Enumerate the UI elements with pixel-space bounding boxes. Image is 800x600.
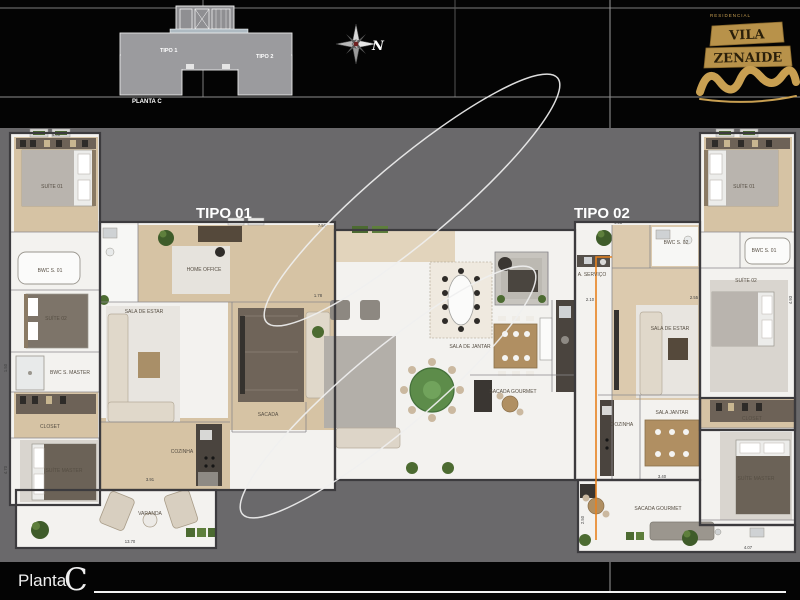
room-label-home-office: HOME OFFICE bbox=[187, 267, 222, 273]
room-label-cozinha2: COZINHA bbox=[611, 422, 634, 428]
room-label-sala-estar: SALA DE ESTAR bbox=[125, 309, 164, 315]
room-label-suite02-r: SUÍTE 02 bbox=[735, 277, 757, 284]
dim-1: 4.51 bbox=[614, 220, 623, 225]
room-label-suite01-r: SUÍTE 01 bbox=[733, 183, 755, 190]
footer-underline bbox=[94, 591, 786, 593]
room-label-closet2: CLOSET bbox=[742, 416, 762, 422]
room-label-cozinha: COZINHA bbox=[171, 449, 194, 455]
room-label-sala-jantar2: SALA JANTAR bbox=[656, 410, 689, 416]
brand-small-text: RESIDENCIAL bbox=[710, 13, 751, 18]
dim-13: 2.50 bbox=[580, 515, 585, 524]
room-label-sala-estar2: SALA DE ESTAR bbox=[651, 326, 690, 332]
room-label-bwc01-r: BWC S. 01 bbox=[752, 248, 777, 254]
dim-4: 3.91 bbox=[146, 477, 155, 482]
brand-line2: ZENAIDE bbox=[713, 50, 782, 66]
room-label-suite02: SUÍTE 02 bbox=[45, 315, 67, 322]
room-label-varanda: VARANDA bbox=[138, 511, 162, 517]
dim-11: 4.93 bbox=[788, 295, 793, 304]
dim-6: 3.40 bbox=[658, 474, 667, 479]
dim-0: 4.00 bbox=[52, 132, 61, 137]
room-label-bwc02: BWC S. 02 bbox=[664, 240, 689, 246]
room-label-bwc-master: BWC S. MASTER bbox=[50, 370, 90, 376]
unit1-title: TIPO 01 bbox=[196, 205, 252, 222]
room-label-sacada-gourmet2: SACADA GOURMET bbox=[634, 506, 681, 512]
keyplan-tipo2-label: TIPO 2 bbox=[256, 54, 273, 60]
dim-3: 2.55 bbox=[690, 295, 699, 300]
dim-2: 1.78 bbox=[314, 293, 323, 298]
footer-plan-label: Planta bbox=[18, 571, 67, 590]
dim-5: 13.70 bbox=[125, 539, 136, 544]
room-label-sala-jantar: SALA DE JANTAR bbox=[449, 344, 491, 350]
floorplan-canvas: TIPO 1 TIPO 2 PLANTA C N RESIDENCIAL VIL… bbox=[0, 0, 800, 600]
room-label-suite-master: SUÍTE MASTER bbox=[46, 467, 83, 474]
floorplan-sheet: TIPO 1 TIPO 2 PLANTA C N RESIDENCIAL VIL… bbox=[0, 0, 800, 600]
dim-7: 2.10 bbox=[586, 297, 595, 302]
room-label-closet: CLOSET bbox=[40, 424, 60, 430]
room-label-servico: A. SERVIÇO bbox=[578, 272, 607, 278]
keyplan-caption: PLANTA C bbox=[132, 99, 162, 105]
footer-plan-letter: C bbox=[64, 562, 88, 598]
brand-line1: VILA bbox=[728, 27, 766, 43]
room-label-suite-master2: SUÍTE MASTER bbox=[738, 475, 775, 482]
room-label-bwc01: BWC S. 01 bbox=[38, 268, 63, 274]
room-label-suite01: SUÍTE 01 bbox=[41, 183, 63, 190]
dim-8: 1.50 bbox=[3, 363, 8, 372]
keyplan-tipo1-label: TIPO 1 bbox=[160, 48, 177, 54]
dim-12: 4.07 bbox=[744, 545, 753, 550]
compass-north-label: N bbox=[371, 39, 385, 54]
room-label-sacada-gourmet: SACADA GOURMET bbox=[489, 389, 536, 395]
room-label-sacada: SACADA bbox=[258, 412, 279, 418]
dim-9: 4.70 bbox=[3, 465, 8, 474]
